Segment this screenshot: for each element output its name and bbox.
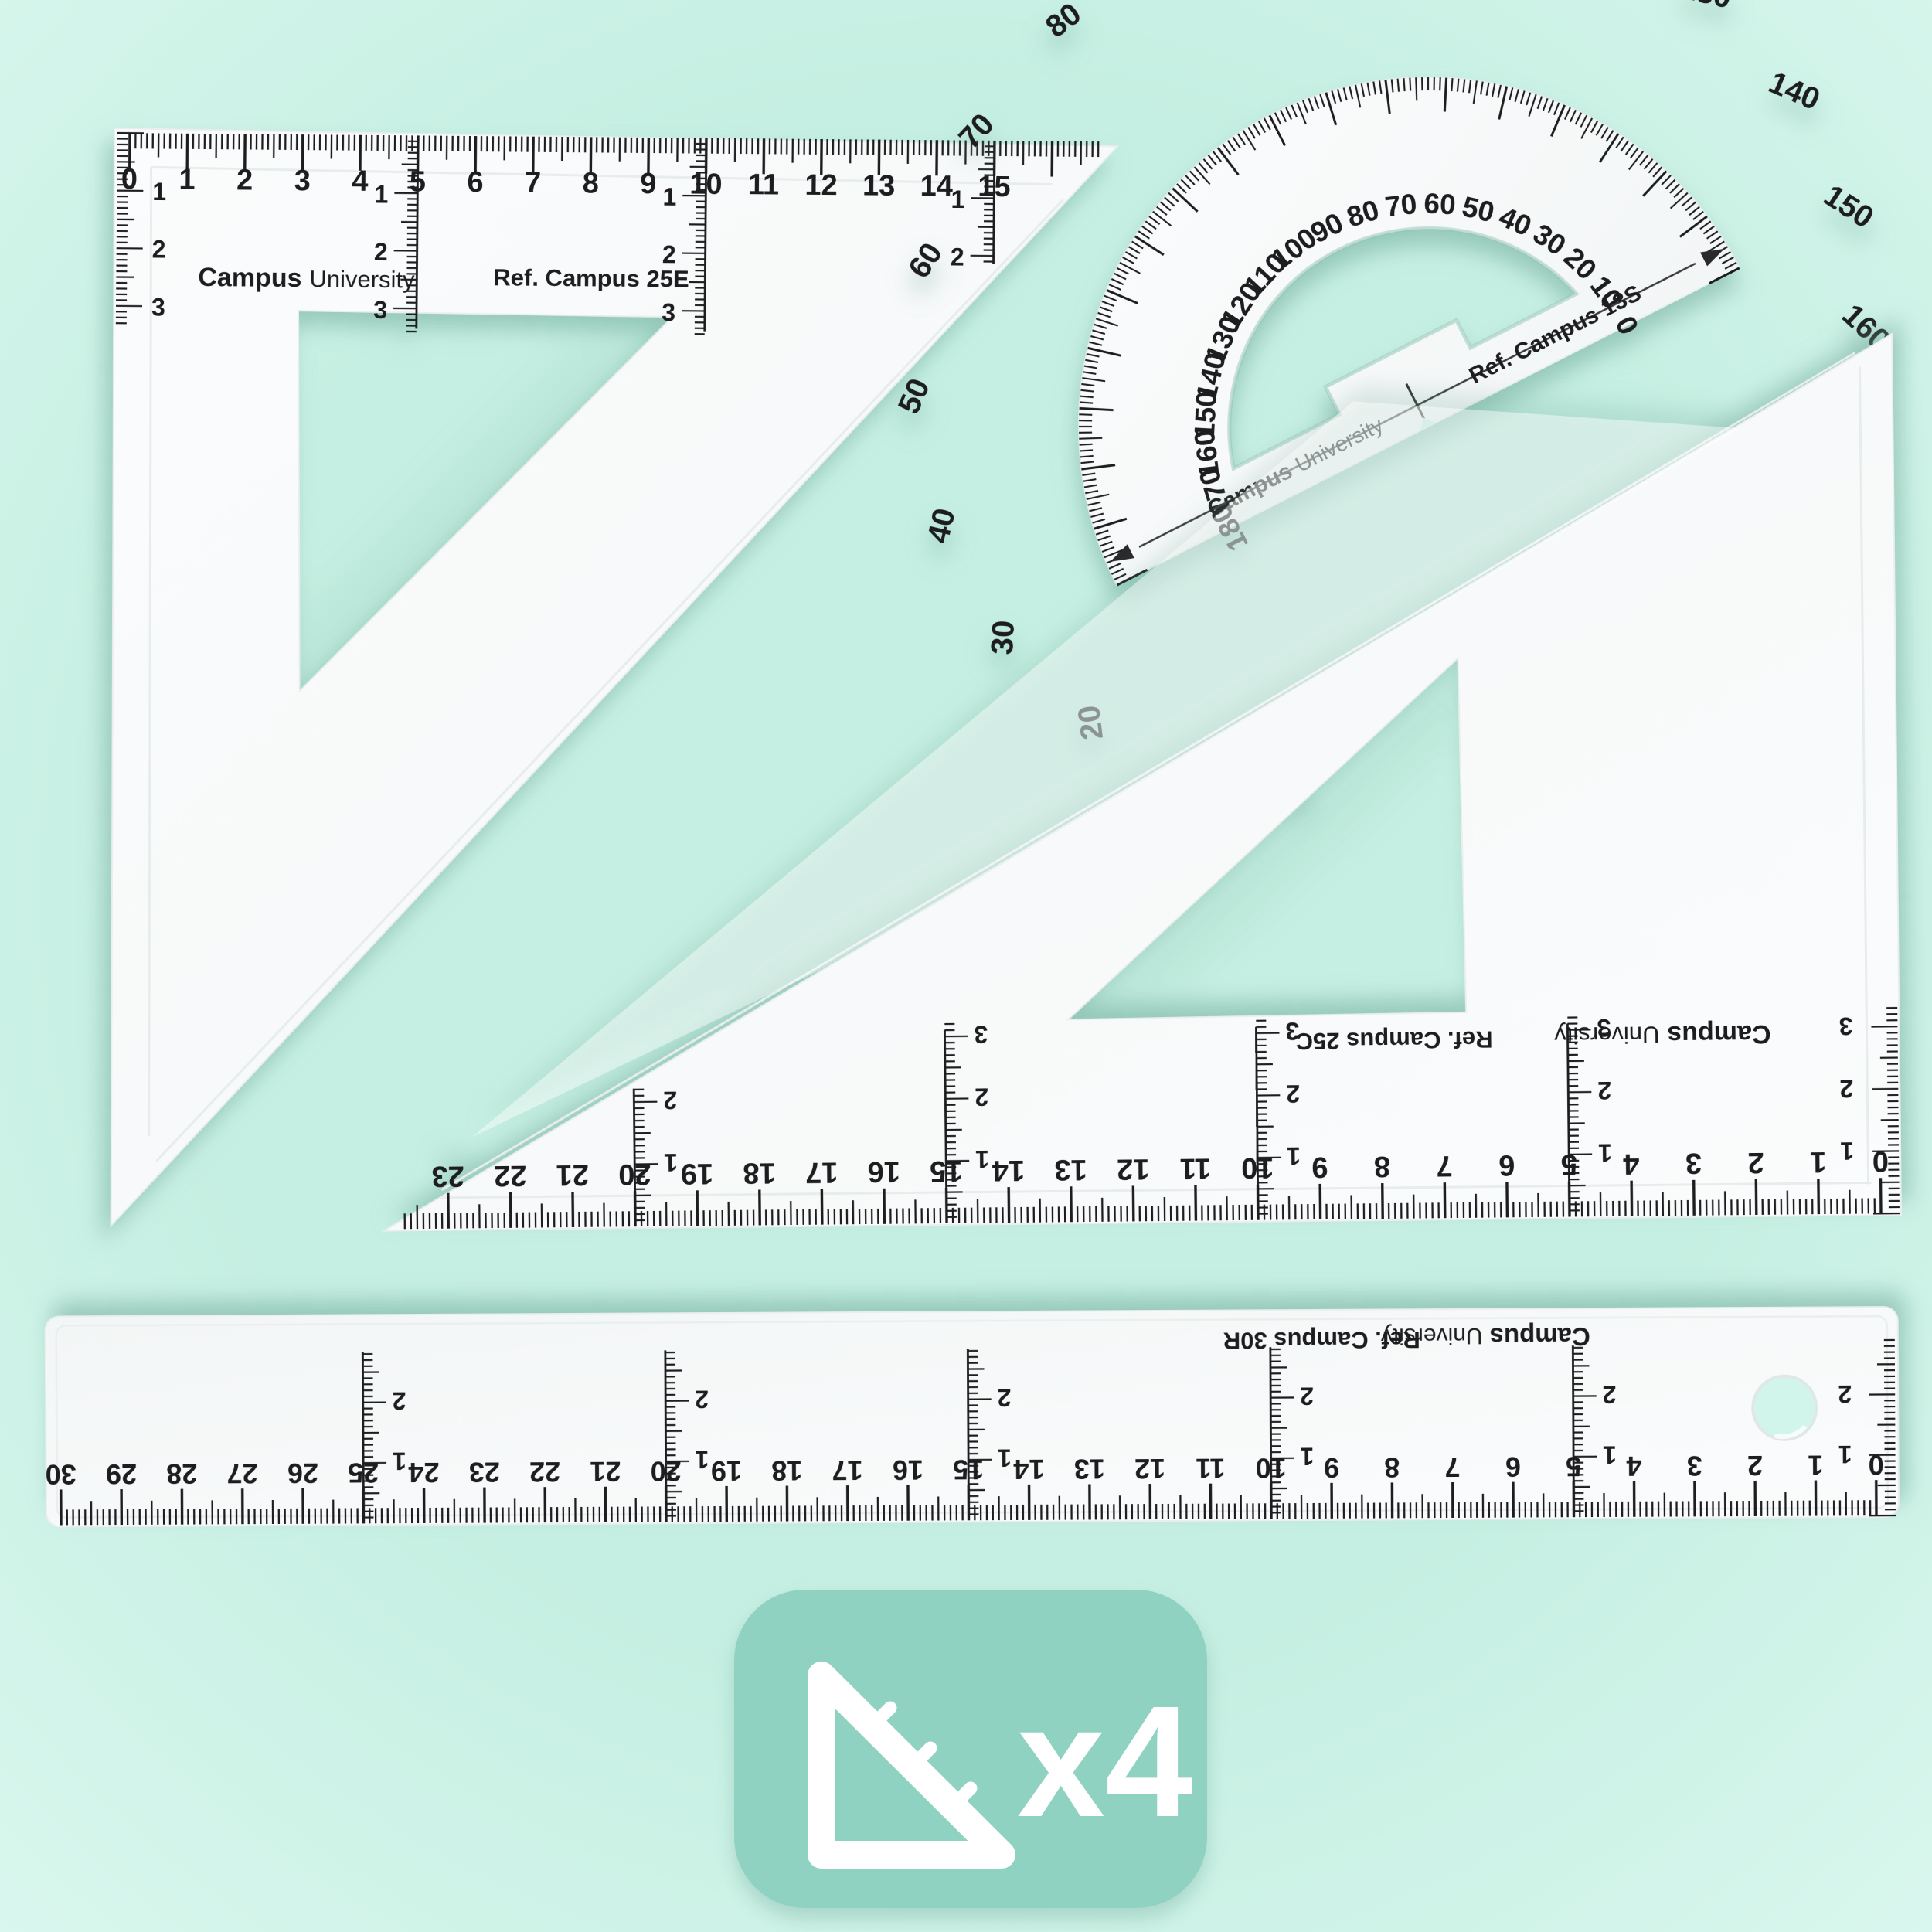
svg-text:1: 1: [1838, 1440, 1852, 1468]
svg-text:18: 18: [743, 1156, 776, 1189]
svg-text:1: 1: [1287, 1142, 1301, 1170]
svg-text:4: 4: [1626, 1451, 1641, 1482]
svg-text:60: 60: [1423, 187, 1456, 220]
svg-text:24: 24: [408, 1457, 439, 1488]
svg-text:6: 6: [467, 166, 484, 199]
svg-text:21: 21: [590, 1456, 621, 1488]
svg-text:2: 2: [236, 164, 253, 196]
svg-text:1: 1: [998, 1444, 1012, 1472]
svg-text:13: 13: [862, 169, 896, 202]
svg-text:12: 12: [804, 169, 838, 202]
svg-text:2: 2: [393, 1387, 406, 1415]
svg-text:26: 26: [287, 1458, 318, 1489]
svg-text:1: 1: [664, 1148, 678, 1176]
svg-text:9: 9: [1324, 1452, 1339, 1484]
ref-label: Ref. Campus 25E: [493, 264, 689, 292]
svg-text:2: 2: [998, 1383, 1012, 1411]
svg-text:1: 1: [1810, 1145, 1827, 1178]
svg-text:1: 1: [1598, 1138, 1612, 1166]
svg-text:7: 7: [1444, 1451, 1460, 1483]
svg-text:22: 22: [494, 1159, 527, 1192]
svg-text:29: 29: [106, 1458, 137, 1490]
svg-text:17: 17: [805, 1155, 838, 1188]
quantity-badge: x4: [734, 1590, 1207, 1908]
svg-text:12: 12: [1117, 1152, 1150, 1185]
svg-text:3: 3: [1838, 1012, 1852, 1040]
svg-text:16: 16: [893, 1454, 923, 1486]
svg-text:1: 1: [662, 183, 676, 211]
svg-text:3: 3: [294, 165, 311, 197]
svg-text:1: 1: [1603, 1441, 1617, 1469]
product-photo: 012345678910111213141512312312312 Campus…: [0, 0, 1932, 1932]
svg-text:2: 2: [663, 1086, 677, 1114]
svg-text:1: 1: [975, 1145, 989, 1173]
svg-text:2: 2: [374, 238, 388, 266]
svg-text:30: 30: [46, 1458, 77, 1490]
svg-text:4: 4: [1623, 1148, 1640, 1180]
svg-text:2: 2: [951, 243, 964, 271]
svg-text:2: 2: [662, 240, 676, 268]
svg-text:30: 30: [985, 620, 1021, 656]
svg-text:9: 9: [1311, 1151, 1328, 1183]
svg-text:1: 1: [374, 181, 388, 209]
svg-text:2: 2: [1286, 1080, 1300, 1107]
svg-text:1: 1: [152, 178, 166, 206]
svg-text:0: 0: [1872, 1145, 1889, 1177]
svg-text:27: 27: [226, 1458, 257, 1489]
svg-text:11: 11: [1179, 1151, 1211, 1184]
svg-text:21: 21: [556, 1158, 589, 1191]
svg-text:7: 7: [1436, 1149, 1453, 1182]
svg-text:4: 4: [352, 165, 369, 198]
ref-label: Ref. Campus 30R: [1223, 1326, 1420, 1354]
svg-text:1: 1: [951, 185, 964, 213]
svg-text:2: 2: [1747, 1146, 1764, 1179]
svg-text:2: 2: [1839, 1074, 1853, 1102]
svg-text:3: 3: [1685, 1147, 1702, 1179]
svg-text:2: 2: [695, 1385, 709, 1413]
geometry-set-scene: 012345678910111213141512312312312 Campus…: [0, 0, 1932, 1932]
svg-text:3: 3: [974, 1021, 988, 1049]
svg-text:70: 70: [1383, 188, 1419, 223]
svg-text:2: 2: [1597, 1077, 1611, 1104]
svg-text:14: 14: [1013, 1454, 1044, 1485]
svg-text:2: 2: [152, 236, 166, 264]
svg-text:1: 1: [1840, 1137, 1854, 1165]
svg-text:22: 22: [529, 1456, 560, 1488]
svg-text:2: 2: [1838, 1380, 1852, 1408]
svg-text:1: 1: [695, 1446, 709, 1474]
svg-text:14: 14: [992, 1154, 1026, 1186]
svg-text:8: 8: [1374, 1150, 1391, 1182]
svg-text:2: 2: [1747, 1450, 1763, 1481]
svg-text:2: 2: [1300, 1382, 1314, 1410]
quantity-label: x4: [1017, 1673, 1193, 1850]
svg-text:6: 6: [1505, 1451, 1521, 1483]
svg-text:8: 8: [1384, 1451, 1400, 1483]
svg-text:1: 1: [179, 164, 196, 196]
svg-text:0: 0: [1869, 1449, 1884, 1481]
svg-text:28: 28: [166, 1458, 197, 1490]
svg-text:3: 3: [151, 293, 165, 321]
svg-text:2: 2: [1603, 1380, 1617, 1408]
svg-text:1: 1: [1300, 1443, 1314, 1471]
ref-label: Ref. Campus 25C: [1295, 1026, 1492, 1056]
svg-text:3: 3: [662, 298, 675, 326]
hanging-hole: [1753, 1376, 1816, 1440]
svg-text:19: 19: [711, 1455, 742, 1487]
svg-text:3: 3: [373, 296, 387, 324]
svg-text:1: 1: [393, 1447, 406, 1475]
svg-text:7: 7: [525, 167, 542, 199]
svg-text:14: 14: [920, 170, 953, 202]
svg-text:16: 16: [867, 1155, 900, 1188]
svg-text:3: 3: [1687, 1450, 1702, 1481]
svg-text:23: 23: [431, 1159, 464, 1192]
svg-text:1: 1: [1808, 1450, 1823, 1481]
svg-text:19: 19: [681, 1157, 714, 1189]
ruler-30cm: 0123456789101112131415161718192021222324…: [45, 1307, 1899, 1527]
svg-text:17: 17: [832, 1454, 862, 1486]
svg-text:13: 13: [1054, 1153, 1087, 1185]
svg-text:11: 11: [748, 168, 780, 201]
svg-text:8: 8: [582, 167, 599, 199]
svg-text:18: 18: [771, 1454, 802, 1486]
svg-text:13: 13: [1074, 1453, 1105, 1485]
svg-text:11: 11: [1196, 1453, 1225, 1485]
svg-text:9: 9: [640, 168, 657, 200]
svg-text:12: 12: [1134, 1453, 1165, 1485]
svg-text:2: 2: [975, 1083, 988, 1111]
svg-text:23: 23: [469, 1456, 500, 1488]
svg-text:6: 6: [1498, 1148, 1515, 1181]
